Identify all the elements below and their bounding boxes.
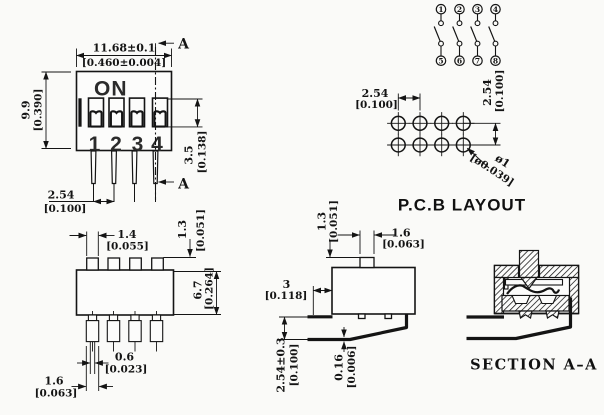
actuator-stem — [520, 251, 539, 278]
height-dim-in: [0.390] — [33, 89, 45, 132]
section-title: SECTION A–A — [470, 357, 598, 374]
depth-dim-in: [0.264] — [204, 267, 216, 310]
actuator-tab — [152, 258, 164, 270]
terminal-base — [502, 296, 569, 312]
row-pitch-in: [0.100] — [289, 344, 301, 387]
side-view: 1.3 [0.051] 1.6 [0.063] 3 [0.118] 2.54±0… — [265, 200, 425, 392]
top-view-body — [77, 270, 174, 315]
pad-pitch-v-in: [0.100] — [494, 70, 506, 113]
standoff-boss — [385, 314, 392, 319]
front-view: ON 1 2 3 4 A A 11.68±0.1 [0.460±0.004] 9… — [20, 37, 209, 216]
pcb-pad — [387, 134, 409, 156]
pin — [132, 151, 137, 202]
case-top-wall — [540, 266, 579, 278]
rocker-switch-4 — [153, 98, 168, 127]
side-tab-height-mm: 1.3 — [316, 212, 329, 231]
actuator-tab — [87, 258, 99, 270]
section-label-bottom: A — [177, 177, 190, 193]
row-pitch-mm: 2.54±0.3 — [275, 337, 288, 392]
wire-width-in: [0.023] — [105, 364, 148, 376]
section-label-top: A — [177, 37, 190, 53]
case-top-wall — [495, 266, 519, 278]
width-dim-mm: 11.68±0.1 — [93, 42, 156, 55]
side-actuator-tab — [360, 258, 374, 268]
pin-width-mm: 1.6 — [44, 375, 63, 388]
on-label: ON — [94, 78, 128, 101]
terminal-2: 2 — [457, 5, 462, 14]
lead-thickness-in: [0.006] — [346, 346, 358, 389]
pcb-pad — [431, 112, 453, 134]
terminal-pin — [519, 311, 532, 318]
terminal-pin — [546, 311, 559, 318]
pin1-marker-bar — [78, 98, 81, 126]
tab-width-in: [0.055] — [106, 241, 149, 253]
dip-switch-technical-drawing: ON 1 2 3 4 A A 11.68±0.1 [0.460±0.004] 9… — [0, 0, 604, 415]
terminal-4: 4 — [493, 5, 498, 14]
pad-pitch-v-mm: 2.54 — [481, 79, 494, 106]
width-dim-in: [0.460±0.004] — [82, 57, 167, 69]
slot-dim-in: [0.138] — [197, 131, 209, 174]
actuator-tab — [130, 258, 142, 270]
terminal-3: 3 — [475, 5, 480, 14]
tab-height-in: [0.051] — [195, 209, 207, 252]
pcb-pad — [409, 134, 431, 156]
pcb-pad — [431, 134, 453, 156]
pin — [150, 311, 162, 352]
tab-width-mm: 1.4 — [117, 228, 136, 241]
terminal-7: 7 — [475, 56, 480, 65]
standoff-boss — [359, 314, 366, 319]
pcb-pad — [409, 112, 431, 134]
pad-pitch-h-in: [0.100] — [355, 99, 398, 111]
height-dim-mm: 9.9 — [20, 100, 33, 119]
terminal-5: 5 — [438, 56, 443, 65]
pcb-layout-title: P.C.B LAYOUT — [398, 196, 526, 215]
actuator-tab — [108, 258, 120, 270]
pin — [86, 311, 98, 352]
rocker-switch-2 — [109, 98, 124, 127]
wire-width-mm: 0.6 — [115, 351, 134, 364]
side-tab-height-in: [0.051] — [328, 200, 340, 243]
section-view: SECTION A–A — [467, 251, 598, 374]
terminal-6: 6 — [457, 56, 462, 65]
drawing-sheet: ON 1 2 3 4 A A 11.68±0.1 [0.460±0.004] 9… — [0, 0, 604, 415]
side-tab-width-in: [0.063] — [382, 239, 425, 251]
circuit-schematic: 1 2 3 4 5 6 7 8 — [434, 5, 500, 66]
pin — [129, 311, 141, 352]
rocker-switch-1 — [89, 98, 104, 127]
pin-width-in: [0.063] — [35, 388, 78, 400]
top-view: 1.4 [0.055] 1.3 [0.051] 6.7 [0.264] 0.6 … — [35, 209, 221, 399]
pcb-layout: 2.54 [0.100] 2.54 [0.100] ø1 [ø0.039] P.… — [355, 70, 526, 215]
pin — [112, 151, 117, 202]
lead-thickness-mm: 0.16 — [333, 354, 346, 381]
terminal-1: 1 — [438, 5, 443, 14]
tab-height-mm: 1.3 — [176, 220, 189, 239]
rocker-switch-3 — [130, 98, 145, 127]
slot-dim-mm: 3.5 — [183, 145, 196, 164]
pin — [107, 311, 119, 352]
pin — [91, 151, 96, 202]
side-view-body — [332, 268, 415, 315]
standoff-in: [0.118] — [265, 290, 308, 302]
terminal-8: 8 — [493, 56, 498, 65]
pitch-dim-mm: 2.54 — [48, 189, 75, 202]
pcb-pad — [387, 112, 409, 134]
pitch-dim-in: [0.100] — [44, 203, 87, 215]
